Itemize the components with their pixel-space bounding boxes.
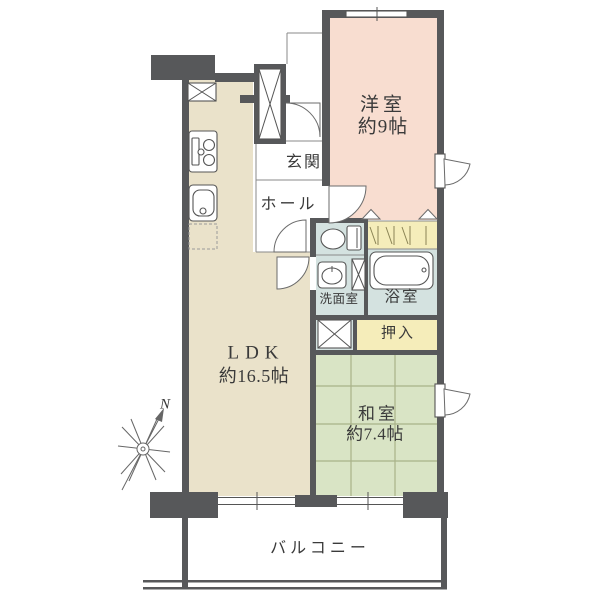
ldk-label: LDK — [227, 344, 284, 363]
western-room-label: 洋室 — [360, 96, 406, 115]
meter-box-icon — [254, 64, 286, 144]
balcony-railing-outer — [143, 580, 447, 583]
pipe-space-icon — [352, 259, 365, 290]
bathroom-label: 浴室 — [384, 289, 419, 305]
washbasin-icon — [318, 262, 346, 288]
washroom-label: 洗面室 — [319, 293, 358, 306]
compass-north-label: N — [160, 398, 170, 413]
western-room-window-door-leaf — [435, 154, 445, 188]
washing-machine-pan-icon — [318, 320, 351, 348]
japanese-room-label: 和室 — [358, 406, 398, 423]
japanese-room-size: 約7.4帖 — [346, 426, 404, 443]
hall-door-arc — [274, 220, 306, 252]
hall-label: ホール — [260, 197, 317, 213]
compass-icon — [118, 408, 170, 490]
bathtub-icon — [370, 252, 433, 289]
entrance-label: 玄関 — [286, 155, 322, 171]
japanese-room-window-door-arc — [444, 389, 470, 415]
ldk-size: 約16.5帖 — [219, 367, 290, 385]
floorplan: 洋室 約9帖 玄関 ホール 洗面室 浴室 押入 和室 約7.4帖 LDK 約16… — [0, 0, 600, 600]
western-room-size: 約9帖 — [358, 118, 409, 137]
kitchen-duct-icon — [188, 83, 216, 101]
western-room-window-door-arc — [444, 159, 470, 185]
balcony-railing-inner — [143, 587, 447, 590]
entrance-door-arc — [286, 103, 320, 137]
floorplan-drawing — [0, 0, 600, 600]
kitchen-sink-icon — [189, 185, 217, 221]
stove-icon — [189, 131, 217, 172]
oshiire-label: 押入 — [381, 327, 415, 342]
balcony-label: バルコニー — [270, 541, 370, 557]
